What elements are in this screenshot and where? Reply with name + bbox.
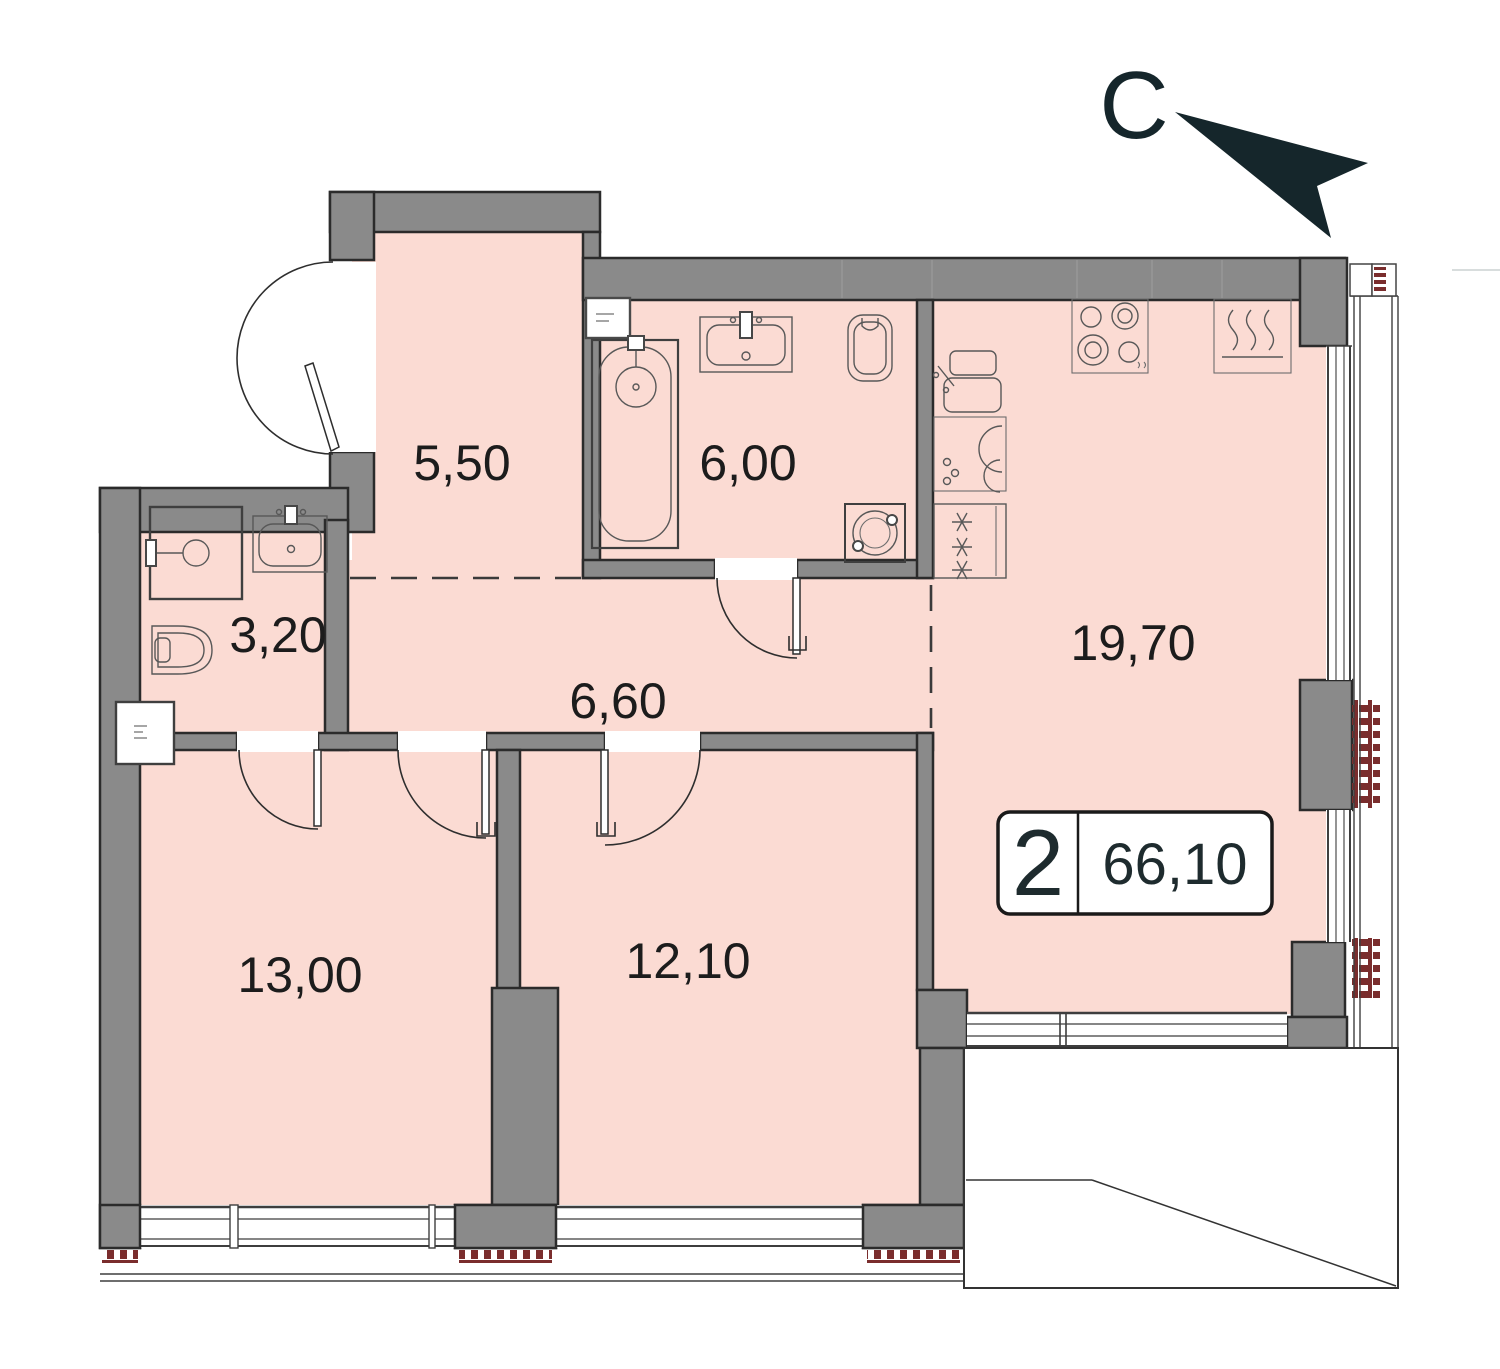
window-band-living — [967, 1012, 1287, 1048]
room-area-label-wc: 3,20 — [229, 607, 326, 663]
wall-balcony-left-column — [920, 1048, 964, 1205]
opening-entry-door — [328, 262, 376, 452]
window-band-right-2 — [1326, 810, 1352, 942]
vent-comb — [459, 1250, 552, 1263]
total-area-value: 66,10 — [1102, 832, 1247, 897]
pier-bottom-right-over — [863, 1205, 964, 1248]
vent-comb — [1352, 700, 1380, 808]
room-area-label-bathroom: 6,00 — [699, 435, 796, 491]
wall-living-bottom-corner — [917, 990, 967, 1048]
wall-bedrooms-divider-lower — [492, 988, 558, 1205]
wall-corridor-bottom-3 — [486, 733, 605, 750]
wall-corridor-bottom-2 — [318, 733, 398, 750]
room-area-label-corridor: 6,60 — [569, 673, 666, 729]
opening-bathroom-door — [715, 558, 797, 580]
shaft-box — [116, 702, 174, 764]
wall-corridor-bottom-4 — [700, 733, 933, 750]
north-arrow-icon — [1175, 112, 1368, 238]
room-entry-fill — [352, 218, 585, 580]
room-area-label-bedroom2: 12,10 — [625, 933, 750, 989]
vent-stripes — [1374, 267, 1386, 294]
vent-shaft-box — [586, 298, 630, 338]
wall-right-pilaster-2 — [1292, 942, 1345, 1017]
wall-wc-right — [325, 520, 348, 750]
north-label: С — [1099, 52, 1168, 159]
room-area-label-entry: 5,50 — [413, 435, 510, 491]
wall-bathroom-kitchen — [917, 300, 933, 578]
wall-bathroom-bottom-left — [583, 560, 715, 578]
vent-comb — [102, 1250, 138, 1263]
room-bathroom-fill — [598, 298, 919, 562]
facade-box — [1350, 264, 1372, 296]
floor-plan-canvas: 5,50 6,00 3,20 6,60 19,70 13,00 12,10 2 … — [0, 0, 1500, 1369]
balcony-outline — [964, 1048, 1398, 1288]
wall-left-exterior — [100, 488, 140, 1248]
entry-door — [237, 262, 339, 454]
window-mullion — [230, 1205, 238, 1248]
opening-bedroom1-door — [398, 731, 486, 752]
wall-bedroom2-right — [917, 733, 933, 990]
area-badge: 2 66,10 — [998, 810, 1272, 915]
opening-wc-door — [237, 731, 318, 752]
balcony — [964, 1048, 1398, 1288]
wall-kitchen-right-corner — [1300, 258, 1347, 346]
vent-comb — [867, 1250, 960, 1263]
rooms-count-value: 2 — [1012, 810, 1064, 915]
opening-bedroom2-door — [605, 731, 700, 752]
room-area-label-bedroom1: 13,00 — [237, 947, 362, 1003]
north-indicator: С — [1099, 52, 1368, 238]
wall-top-exterior — [583, 258, 1345, 300]
pier-bottom-center-over — [455, 1205, 556, 1248]
wall-entry-topleft-block — [330, 192, 374, 260]
wall-right-pilaster-foot — [1287, 1017, 1347, 1048]
wall-right-pilaster-1 — [1300, 680, 1352, 810]
vent-comb — [1352, 938, 1380, 998]
wall-bedrooms-divider — [497, 750, 520, 990]
pier-bottom-left-over — [100, 1205, 140, 1248]
window-mullion — [429, 1205, 435, 1248]
room-area-label-kitchen-living: 19,70 — [1070, 615, 1195, 671]
window-band-right-1 — [1326, 346, 1352, 680]
floor-plan-drawing: 5,50 6,00 3,20 6,60 19,70 13,00 12,10 2 … — [0, 0, 1500, 1369]
